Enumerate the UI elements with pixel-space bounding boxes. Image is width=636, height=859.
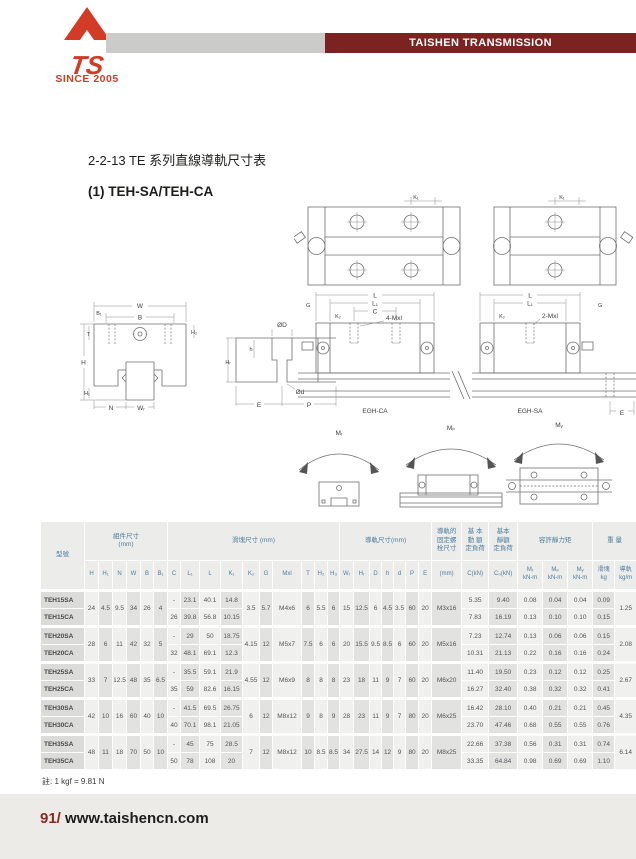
- model-cell: TEH30SA: [41, 699, 85, 717]
- cell-MR: 0.68: [518, 717, 543, 735]
- column-group-header-7: 重 量: [593, 522, 636, 561]
- column-header-H3: H₃: [328, 561, 340, 591]
- cell-MP: 0.55: [543, 717, 568, 735]
- catalog-page: TS SINCE 2005 TAISHEN TRANSMISSION 2-2-1…: [0, 0, 636, 859]
- dim-label-k2-left: K₂: [335, 314, 341, 320]
- dim-label-l1-right: L₁: [527, 301, 534, 308]
- cell-MR: 0.13: [518, 627, 543, 645]
- cell-N: 9.5: [113, 591, 127, 627]
- column-header-L1: L₁: [181, 561, 200, 591]
- cell-T: 10: [302, 735, 315, 770]
- cell-C0kN: 28.10: [489, 699, 518, 717]
- cell-MP: 0.06: [543, 627, 568, 645]
- cell-H1: 4.5: [99, 591, 113, 627]
- cell-MR: 0.08: [518, 591, 543, 609]
- cell-MP: 0.21: [543, 699, 568, 717]
- table-row: TEH25SA33712.548356.5-35.559.121.94.5512…: [41, 663, 636, 681]
- cell-L1: 35.5: [181, 663, 200, 681]
- cell-MY: 0.55: [568, 717, 593, 735]
- cell-K1: 18.75: [221, 627, 243, 645]
- cell-P: 60: [406, 663, 419, 699]
- cell-L: 108: [200, 753, 221, 770]
- logo-ts-glyph: TS: [41, 55, 134, 75]
- cell-MP: 0.10: [543, 609, 568, 627]
- cell-C: 26: [168, 609, 181, 627]
- cell-rail_kg: 1.25: [615, 591, 636, 627]
- side-view-drawing: G L L₁ C K₂ 4-Mxl K₂ L L₁ 2-Mxl G EGH-CA…: [298, 287, 636, 421]
- cell-B: 26: [141, 591, 154, 627]
- cell-block_kg: 0.15: [593, 627, 615, 645]
- column-header-B1: B₁: [154, 561, 168, 591]
- cell-L: 69.5: [200, 699, 221, 717]
- column-header-MP: Mₚ kN-m: [543, 561, 568, 591]
- cell-K1: 28.5: [221, 735, 243, 753]
- cell-E: 20: [419, 663, 432, 699]
- cell-G: 12: [260, 663, 273, 699]
- column-header-B: B: [141, 561, 154, 591]
- cell-MR: 0.38: [518, 681, 543, 699]
- cell-C: -: [168, 699, 181, 717]
- cell-L1: 48.1: [181, 645, 200, 663]
- cell-G: 5.7: [260, 591, 273, 627]
- cell-MY: 0.06: [568, 627, 593, 645]
- cell-B: 50: [141, 735, 154, 770]
- cell-block_kg: 0.45: [593, 699, 615, 717]
- cell-K2: 4.15: [243, 627, 260, 663]
- cell-C: 50: [168, 753, 181, 770]
- cell-L: 82.6: [200, 681, 221, 699]
- cell-CkN: 16.42: [462, 699, 489, 717]
- cell-B1: 6.5: [154, 663, 168, 699]
- cell-CkN: 7.23: [462, 627, 489, 645]
- cell-d: 3.5: [394, 591, 406, 627]
- moment-yaw-diagram: Mᵧ: [500, 418, 618, 510]
- cell-block_kg: 0.76: [593, 717, 615, 735]
- cell-MY: 0.32: [568, 681, 593, 699]
- cell-B: 35: [141, 663, 154, 699]
- cell-K1: 12.3: [221, 645, 243, 663]
- cell-C: 40: [168, 717, 181, 735]
- dim-label-b1: B₁: [96, 311, 102, 317]
- dim-label-k1-left: K₁: [413, 195, 419, 201]
- top-view-drawing: K₁ K₁: [294, 194, 634, 294]
- brand-name: TAISHEN TRANSMISSION: [409, 37, 552, 49]
- column-header-HR: Hᵣ: [354, 561, 370, 591]
- cell-HR: 27.5: [354, 735, 370, 770]
- model-cell: TEH30CA: [41, 717, 85, 735]
- cell-h: 9: [382, 663, 394, 699]
- cell-P: 60: [406, 591, 419, 627]
- cell-C0kN: 16.19: [489, 609, 518, 627]
- cell-MR: 0.56: [518, 735, 543, 753]
- cell-E: 20: [419, 699, 432, 735]
- cell-C: -: [168, 591, 181, 609]
- cell-K1: 16.15: [221, 681, 243, 699]
- cell-H3: 6: [328, 591, 340, 627]
- cell-K1: 14.8: [221, 591, 243, 609]
- cell-K2: 4.55: [243, 663, 260, 699]
- column-group-header-1: 滑塊尺寸 (mm): [168, 522, 340, 561]
- dim-label-g-right: G: [598, 303, 602, 309]
- cell-L1: 78: [181, 753, 200, 770]
- section-title: 2-2-13 TE 系列直線導軌尺寸表: [88, 150, 266, 169]
- column-header-K1: K₁: [221, 561, 243, 591]
- cell-E: 20: [419, 591, 432, 627]
- column-header-WR: Wᵣ: [340, 561, 354, 591]
- cell-H3: 8.5: [328, 735, 340, 770]
- cell-K1: 20: [221, 753, 243, 770]
- dim-label-e: E: [257, 402, 262, 409]
- cell-L1: 23.1: [181, 591, 200, 609]
- cell-H: 24: [85, 591, 99, 627]
- cell-Mxl: M4x6: [273, 591, 302, 627]
- cell-CkN: 10.31: [462, 645, 489, 663]
- cell-W: 42: [127, 627, 141, 663]
- cell-CkN: 33.35: [462, 753, 489, 770]
- cell-C: -: [168, 627, 181, 645]
- cell-block_kg: 0.24: [593, 645, 615, 663]
- column-header-CkN: C(kN): [462, 561, 489, 591]
- cell-L: 56.8: [200, 609, 221, 627]
- cell-B1: 10: [154, 699, 168, 735]
- cell-L: 40.1: [200, 591, 221, 609]
- header-gray-bar: [106, 33, 325, 53]
- cell-rail_kg: 2.08: [615, 627, 636, 663]
- column-header-N: N: [113, 561, 127, 591]
- cell-CkN: 16.27: [462, 681, 489, 699]
- dim-label-h1: H₁: [84, 391, 90, 397]
- cell-d: 7: [394, 699, 406, 735]
- cell-MP: 0.69: [543, 753, 568, 770]
- cell-CkN: 11.40: [462, 663, 489, 681]
- series-subtitle: (1) TEH-SA/TEH-CA: [88, 184, 213, 199]
- cell-WR: 15: [340, 591, 354, 627]
- cell-h: 9: [382, 699, 394, 735]
- cell-bolt: M5x16: [432, 627, 462, 663]
- column-header-bolt: (mm): [432, 561, 462, 591]
- cell-block_kg: 0.09: [593, 591, 615, 609]
- cell-H3: 6: [328, 627, 340, 663]
- model-cell: TEH15CA: [41, 609, 85, 627]
- column-header-D: D: [370, 561, 382, 591]
- dim-label-t: T: [87, 332, 91, 338]
- cell-CkN: 7.83: [462, 609, 489, 627]
- model-cell: TEH20SA: [41, 627, 85, 645]
- cell-K1: 26.75: [221, 699, 243, 717]
- cell-T: 9: [302, 699, 315, 735]
- label-moment-roll: Mᵣ: [336, 430, 343, 437]
- column-header-P: P: [406, 561, 419, 591]
- label-egh-sa: EGH-SA: [518, 408, 544, 415]
- model-cell: TEH25CA: [41, 681, 85, 699]
- page-number: 91/: [40, 810, 61, 827]
- cell-G: 12: [260, 699, 273, 735]
- column-group-header-5: 基本 靜額 定負荷: [489, 522, 518, 561]
- cross-section-drawing: W B B₁ T H H₁ H₂ N Wᵣ: [74, 296, 202, 416]
- cell-MR: 0.98: [518, 753, 543, 770]
- website-link[interactable]: www.taishencn.com: [65, 810, 209, 827]
- dim-label-wr: Wᵣ: [137, 405, 145, 412]
- cell-MY: 0.12: [568, 663, 593, 681]
- column-header-E: E: [419, 561, 432, 591]
- model-cell: TEH35CA: [41, 753, 85, 770]
- cell-L: 98.1: [200, 717, 221, 735]
- cell-D: 14: [370, 735, 382, 770]
- cell-h: 8.5: [382, 627, 394, 663]
- cell-MY: 0.04: [568, 591, 593, 609]
- dim-label-l-right: L: [528, 293, 532, 300]
- cell-H: 48: [85, 735, 99, 770]
- cell-G: 12: [260, 735, 273, 770]
- cell-B: 32: [141, 627, 154, 663]
- cell-bolt: M8x25: [432, 735, 462, 770]
- column-header-MR: Mᵣ kN-m: [518, 561, 543, 591]
- dim-label-w: W: [137, 303, 144, 310]
- cell-MP: 0.31: [543, 735, 568, 753]
- cell-MR: 0.40: [518, 699, 543, 717]
- cell-MR: 0.22: [518, 645, 543, 663]
- cell-MP: 0.12: [543, 663, 568, 681]
- cell-P: 80: [406, 735, 419, 770]
- dim-label-b: B: [138, 315, 142, 322]
- cell-WR: 34: [340, 735, 354, 770]
- cell-block_kg: 0.41: [593, 681, 615, 699]
- column-header-T: T: [302, 561, 315, 591]
- moment-pitch-diagram: Mₚ: [392, 421, 510, 513]
- cell-Mxl: M6x9: [273, 663, 302, 699]
- column-group-header-0: 組件尺寸 (mm): [85, 522, 168, 561]
- cell-D: 6: [370, 591, 382, 627]
- dim-label-od-big: ØD: [277, 322, 287, 329]
- cell-N: 18: [113, 735, 127, 770]
- cell-HR: 15.5: [354, 627, 370, 663]
- dim-label-c: C: [373, 309, 378, 316]
- column-header-block_kg: 滑塊 kg: [593, 561, 615, 591]
- cell-G: 12: [260, 627, 273, 663]
- cell-L1: 29: [181, 627, 200, 645]
- cell-P: 80: [406, 699, 419, 735]
- cell-block_kg: 0.25: [593, 663, 615, 681]
- column-header-Mxl: Mxl: [273, 561, 302, 591]
- column-group-header-4: 基 本 動 額 定負荷: [462, 522, 489, 561]
- cell-MP: 0.16: [543, 645, 568, 663]
- cell-H2: 8.5: [315, 735, 328, 770]
- cell-CkN: 22.66: [462, 735, 489, 753]
- cell-bolt: M6x20: [432, 663, 462, 699]
- cell-N: 11: [113, 627, 127, 663]
- cell-d: 9: [394, 735, 406, 770]
- column-header-rail_kg: 導軌 kg/m: [615, 561, 636, 591]
- table-row: TEH35SA481118705010-457528.5712M8x12108.…: [41, 735, 636, 753]
- cell-E: 20: [419, 735, 432, 770]
- cell-WR: 28: [340, 699, 354, 735]
- cell-h: 4.5: [382, 591, 394, 627]
- column-header-MY: Mᵧ kN-m: [568, 561, 593, 591]
- model-cell: TEH35SA: [41, 735, 85, 753]
- dim-label-l-left: L: [373, 293, 377, 300]
- cell-C0kN: 37.38: [489, 735, 518, 753]
- cell-B1: 4: [154, 591, 168, 627]
- dim-label-k1-right: K₁: [559, 195, 565, 201]
- cell-B1: 5: [154, 627, 168, 663]
- cell-W: 48: [127, 663, 141, 699]
- cell-MY: 0.31: [568, 735, 593, 753]
- cell-H1: 11: [99, 735, 113, 770]
- column-header-C0kN: C₀(kN): [489, 561, 518, 591]
- table-row: TEH20SA2861142325-295018.754.1512M5x77.5…: [41, 627, 636, 645]
- cell-H2: 8: [315, 699, 328, 735]
- cell-CkN: 5.35: [462, 591, 489, 609]
- cell-L: 75: [200, 735, 221, 753]
- cell-block_kg: 1.10: [593, 753, 615, 770]
- cell-E: 20: [419, 627, 432, 663]
- cell-D: 11: [370, 699, 382, 735]
- column-header-H2: H₂: [315, 561, 328, 591]
- cell-H: 42: [85, 699, 99, 735]
- cell-H: 33: [85, 663, 99, 699]
- cell-d: 6: [394, 627, 406, 663]
- cell-L1: 41.5: [181, 699, 200, 717]
- cell-K1: 21.9: [221, 663, 243, 681]
- model-cell: TEH15SA: [41, 591, 85, 609]
- cell-C0kN: 32.40: [489, 681, 518, 699]
- cell-HR: 12.5: [354, 591, 370, 627]
- dim-label-l1-left: L₁: [372, 301, 379, 308]
- cell-P: 60: [406, 627, 419, 663]
- cell-C: -: [168, 735, 181, 753]
- cell-C0kN: 64.84: [489, 753, 518, 770]
- cell-H1: 6: [99, 627, 113, 663]
- cell-C0kN: 19.50: [489, 663, 518, 681]
- cell-MR: 0.13: [518, 609, 543, 627]
- cell-MP: 0.32: [543, 681, 568, 699]
- cell-H1: 7: [99, 663, 113, 699]
- dim-label-n: N: [109, 405, 114, 412]
- cell-block_kg: 0.15: [593, 609, 615, 627]
- header-brand-banner: TAISHEN TRANSMISSION: [325, 33, 636, 53]
- moment-roll-diagram: Mᵣ: [283, 424, 395, 516]
- cell-block_kg: 0.74: [593, 735, 615, 753]
- column-header-H: H: [85, 561, 99, 591]
- cell-L: 50: [200, 627, 221, 645]
- column-group-header-2: 導軌尺寸(mm): [340, 522, 432, 561]
- dim-label-h2: H₂: [191, 330, 197, 336]
- label-moment-yaw: Mᵧ: [555, 422, 563, 429]
- table-row: TEH15SA244.59.534264-23.140.114.83.55.7M…: [41, 591, 636, 609]
- label-moment-pitch: Mₚ: [447, 425, 455, 432]
- label-4mxl: 4-Mxl: [386, 315, 402, 322]
- cell-CkN: 23.70: [462, 717, 489, 735]
- cell-HR: 23: [354, 699, 370, 735]
- column-header-d: d: [394, 561, 406, 591]
- cell-B1: 10: [154, 735, 168, 770]
- footer: 91/ www.taishencn.com: [40, 810, 209, 827]
- cell-L1: 45: [181, 735, 200, 753]
- cell-C: -: [168, 663, 181, 681]
- cell-rail_kg: 6.14: [615, 735, 636, 770]
- cell-rail_kg: 4.35: [615, 699, 636, 735]
- column-header-G: G: [260, 561, 273, 591]
- label-egh-ca: EGH-CA: [362, 408, 388, 415]
- cell-C: 32: [168, 645, 181, 663]
- cell-HR: 18: [354, 663, 370, 699]
- column-header-model: 型號: [41, 522, 85, 591]
- column-header-L: L: [200, 561, 221, 591]
- cell-L1: 59: [181, 681, 200, 699]
- cell-Mxl: M8x12: [273, 699, 302, 735]
- cell-K2: 3.5: [243, 591, 260, 627]
- cell-T: 7.5: [302, 627, 315, 663]
- cell-Mxl: M5x7: [273, 627, 302, 663]
- dim-label-e-side: E: [620, 410, 625, 417]
- column-header-W: W: [127, 561, 141, 591]
- cell-C: 35: [168, 681, 181, 699]
- cell-T: 6: [302, 591, 315, 627]
- cell-Mxl: M8x12: [273, 735, 302, 770]
- model-cell: TEH25SA: [41, 663, 85, 681]
- cell-MY: 0.16: [568, 645, 593, 663]
- cell-C0kN: 21.13: [489, 645, 518, 663]
- cell-WR: 23: [340, 663, 354, 699]
- cell-bolt: M3x16: [432, 591, 462, 627]
- column-group-header-6: 容許靜力矩: [518, 522, 593, 561]
- cell-K2: 7: [243, 735, 260, 770]
- table-row: TEH30SA421016604010-41.569.526.75612M8x1…: [41, 699, 636, 717]
- cell-H1: 10: [99, 699, 113, 735]
- cell-H2: 5.5: [315, 591, 328, 627]
- cell-MY: 0.10: [568, 609, 593, 627]
- cell-B: 40: [141, 699, 154, 735]
- cell-C0kN: 47.46: [489, 717, 518, 735]
- cell-K2: 6: [243, 699, 260, 735]
- cell-L1: 70.1: [181, 717, 200, 735]
- column-header-K2: K₂: [243, 561, 260, 591]
- unit-note: 註: 1 kgf = 9.81 N: [42, 776, 104, 787]
- cell-K1: 10.15: [221, 609, 243, 627]
- column-header-h: h: [382, 561, 394, 591]
- cell-D: 9.5: [370, 627, 382, 663]
- cell-MY: 0.21: [568, 699, 593, 717]
- cell-WR: 20: [340, 627, 354, 663]
- cell-H3: 8: [328, 663, 340, 699]
- cell-D: 11: [370, 663, 382, 699]
- dim-label-k2-right: K₂: [499, 314, 505, 320]
- dim-label-hr: Hᵣ: [225, 360, 231, 366]
- cell-H2: 8: [315, 663, 328, 699]
- column-group-header-3: 導軌的 固定螺 栓尺寸: [432, 522, 462, 561]
- cell-bolt: M6x25: [432, 699, 462, 735]
- cell-W: 34: [127, 591, 141, 627]
- cell-L: 59.1: [200, 663, 221, 681]
- cell-W: 70: [127, 735, 141, 770]
- dim-label-h-small: h: [249, 347, 252, 353]
- column-header-C: C: [168, 561, 181, 591]
- cell-h: 12: [382, 735, 394, 770]
- cell-C0kN: 9.40: [489, 591, 518, 609]
- label-2mxl: 2-Mxl: [542, 313, 558, 320]
- cell-L: 69.1: [200, 645, 221, 663]
- cell-rail_kg: 2.67: [615, 663, 636, 699]
- cell-d: 7: [394, 663, 406, 699]
- dim-label-h: H: [81, 360, 86, 367]
- cell-T: 8: [302, 663, 315, 699]
- cell-H: 28: [85, 627, 99, 663]
- dim-label-g-left: G: [306, 303, 310, 309]
- cell-N: 16: [113, 699, 127, 735]
- cell-H2: 6: [315, 627, 328, 663]
- cell-MY: 0.69: [568, 753, 593, 770]
- cell-MR: 0.23: [518, 663, 543, 681]
